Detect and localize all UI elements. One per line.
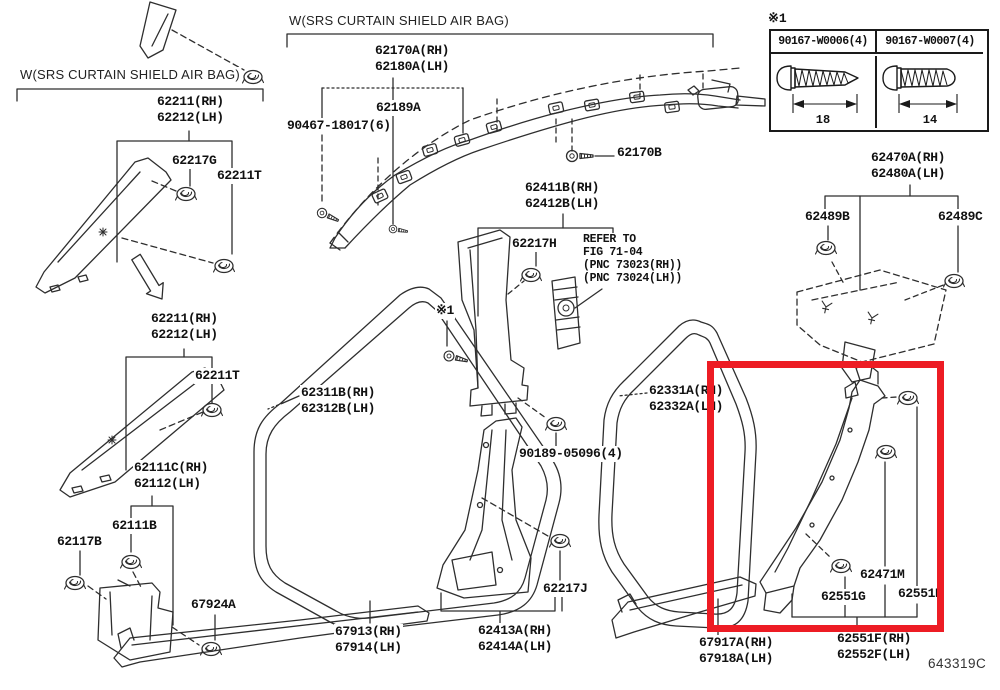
- footnote-marker-1: ※1: [435, 303, 455, 319]
- part-label-62470A: 62470A(RH)62480A(LH): [870, 150, 946, 182]
- part-label-67924A: 67924A: [190, 597, 236, 613]
- part-label-62117B: 62117B: [56, 534, 102, 550]
- part-label-62217G: 62217G: [171, 153, 217, 169]
- screw-18mm-icon: [771, 56, 875, 114]
- part-label-62170A: 62170A(RH)62180A(LH): [374, 43, 450, 75]
- table-marker: ※1: [768, 11, 787, 26]
- fastener-table: 90167-W0006(4) 90167-W0007(4) 18 14: [769, 29, 989, 132]
- fastener-cell: 14: [877, 56, 983, 128]
- part-label-62551H: 62551H: [897, 586, 943, 602]
- airbag-note-center: W(SRS CURTAIN SHIELD AIR BAG): [289, 13, 509, 28]
- part-label-62217H: 62217H: [511, 236, 557, 252]
- part-label-62211-lower: 62211(RH)62212(LH): [150, 311, 219, 343]
- part-label-90189-05096: 90189-05096(4): [518, 446, 624, 462]
- part-label-62413A: 62413A(RH)62414A(LH): [477, 623, 553, 655]
- screw-14mm-icon: [877, 56, 981, 114]
- part-label-62489C: 62489C: [937, 209, 983, 225]
- screw-length-label: 14: [877, 113, 983, 127]
- part-label-62311B: 62311B(RH)62312B(LH): [300, 385, 376, 417]
- direction-arrow: [132, 254, 163, 299]
- part-label-62411B: 62411B(RH)62412B(LH): [524, 180, 600, 212]
- part-label-90467-18017: 90467-18017(6): [286, 118, 392, 134]
- airbag-note-left: W(SRS CURTAIN SHIELD AIR BAG): [20, 67, 240, 82]
- part-label-62217J: 62217J: [542, 581, 588, 597]
- refer-note: REFER TOFIG 71-04(PNC 73023(RH))(PNC 730…: [583, 233, 682, 285]
- part-label-62211T-upper: 62211T: [216, 168, 262, 184]
- part-label-62489B: 62489B: [804, 209, 850, 225]
- part-label-62331A: 62331A(RH)62332A(LH): [648, 383, 724, 415]
- part-label-67917A: 67917A(RH)67918A(LH): [698, 635, 774, 667]
- screw-length-label: 18: [771, 113, 875, 127]
- part-label-62111B: 62111B: [111, 518, 157, 534]
- fastener-part-number: 90167-W0006(4): [771, 31, 877, 54]
- fastener-part-number: 90167-W0007(4): [877, 31, 983, 54]
- part-label-67913: 67913(RH)67914(LH): [334, 624, 403, 656]
- part-label-62551F: 62551F(RH)62552F(LH): [836, 631, 912, 663]
- fastener-cell: 18: [771, 56, 877, 128]
- part-label-62471M: 62471M: [859, 567, 905, 583]
- part-label-62551G: 62551G: [820, 589, 866, 605]
- part-label-62189A: 62189A: [375, 100, 421, 116]
- part-label-62211T-lower: 62211T: [194, 368, 240, 384]
- parts-diagram-page: W(SRS CURTAIN SHIELD AIR BAG) W(SRS CURT…: [0, 0, 1000, 690]
- part-label-62170B: 62170B: [616, 145, 662, 161]
- part-label-62111C: 62111C(RH)62112(LH): [133, 460, 209, 492]
- part-label-62211-upper: 62211(RH)62212(LH): [156, 94, 225, 126]
- drawing-code: 643319C: [928, 656, 986, 671]
